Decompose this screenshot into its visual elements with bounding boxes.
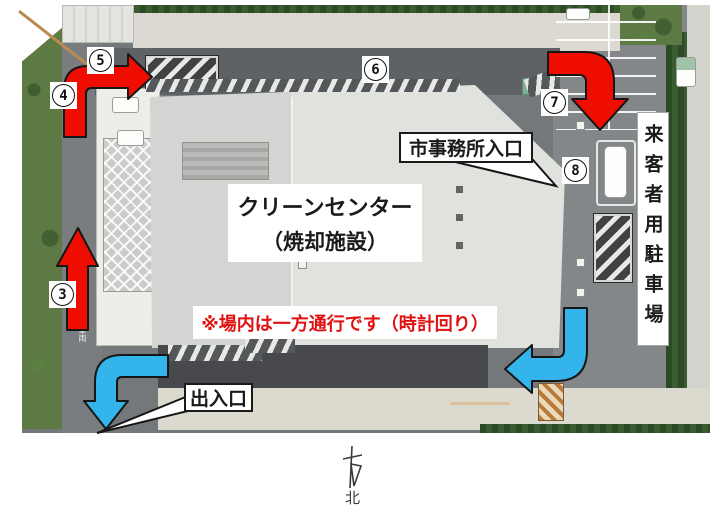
route-marker-5-number: 5 xyxy=(89,49,112,72)
visitor-parking-label: 来客者用駐車場 xyxy=(637,112,669,346)
lattice-structure xyxy=(103,138,158,292)
top-concrete-strip xyxy=(133,13,620,51)
route-marker-8-number: 8 xyxy=(564,159,587,182)
route-marker-8: 8 xyxy=(562,157,589,184)
grass-strip-left xyxy=(22,5,62,429)
parked-van xyxy=(604,146,627,198)
facility-name: クリーンセンター xyxy=(238,190,413,222)
route-marker-5: 5 xyxy=(87,47,114,74)
truck xyxy=(676,57,696,87)
roof-machinery xyxy=(182,142,269,180)
right-hedge xyxy=(666,32,687,428)
neighbor-building xyxy=(62,5,134,43)
route-marker-6: 6 xyxy=(362,56,389,83)
route-marker-3: 3 xyxy=(49,281,76,308)
road-marker-square xyxy=(576,258,585,267)
facility-label: クリーンセンター （焼却施設） xyxy=(228,184,422,262)
route-marker-4: 4 xyxy=(50,82,77,109)
route-marker-6-number: 6 xyxy=(364,58,387,81)
hatch-bottom-b xyxy=(245,338,295,353)
route-marker-3-number: 3 xyxy=(51,283,74,306)
gate-label: 出入口 xyxy=(184,383,253,412)
road-marker-square xyxy=(576,121,585,130)
road-marker-square xyxy=(576,288,585,297)
bottom-hedge xyxy=(480,424,710,433)
ground-paint-mark xyxy=(450,402,510,405)
office-entrance-label: 市事務所入口 xyxy=(399,132,533,163)
road-paint-text: 車両 xyxy=(78,326,87,342)
route-marker-7-number: 7 xyxy=(543,91,566,114)
one-way-notice-text: ※場内は一方通行です（時計回り） xyxy=(201,310,489,336)
vehicle xyxy=(117,130,144,146)
office-entrance-text: 市事務所入口 xyxy=(409,134,523,161)
roof-vent xyxy=(456,214,463,221)
parking-divider-line xyxy=(608,5,610,130)
route-marker-4-number: 4 xyxy=(52,84,75,107)
one-way-notice: ※場内は一方通行です（時計回り） xyxy=(193,306,497,339)
facility-subname: （焼却施設） xyxy=(262,226,388,256)
gate-text: 出入口 xyxy=(190,384,247,411)
orange-hatch-box xyxy=(538,383,564,421)
hatch-box-right-road xyxy=(594,214,632,282)
north-compass-icon xyxy=(343,446,362,488)
route-map-page: 車両 クリーンセンター （焼却施設） ※場内は一方通行です（時計回り） 市事務所… xyxy=(0,0,710,513)
roof-vent xyxy=(456,242,463,249)
vehicle xyxy=(566,8,590,20)
roof-vent xyxy=(456,186,463,193)
vehicle xyxy=(112,97,139,113)
hatch-strip-top xyxy=(146,79,460,92)
north-label: 北 xyxy=(345,487,360,508)
route-marker-7: 7 xyxy=(541,89,568,116)
visitor-parking-text: 来客者用駐車場 xyxy=(640,124,667,334)
